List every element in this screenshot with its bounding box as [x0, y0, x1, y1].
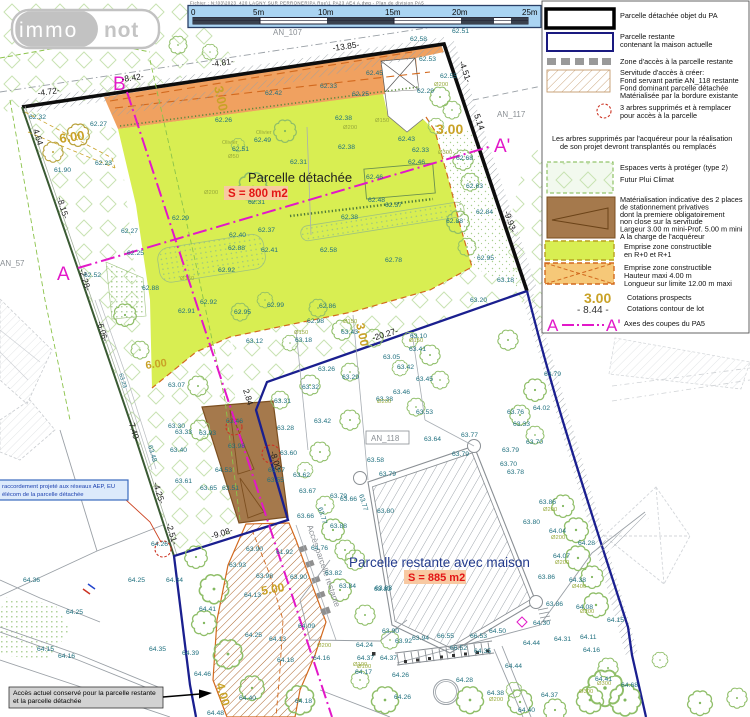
svg-text:Ø300: Ø300 — [438, 150, 452, 156]
svg-text:10m: 10m — [318, 8, 334, 17]
svg-text:63.98: 63.98 — [228, 443, 245, 450]
svg-text:25m: 25m — [522, 8, 538, 17]
svg-text:Ø50: Ø50 — [228, 154, 239, 160]
svg-text:S = 885 m2: S = 885 m2 — [408, 572, 465, 584]
svg-text:63.29: 63.29 — [342, 374, 359, 381]
svg-text:Espaces verts à protéger (type: Espaces verts à protéger (type 2) — [620, 163, 728, 172]
svg-text:64.15: 64.15 — [37, 646, 54, 653]
svg-text:3.00: 3.00 — [584, 290, 611, 306]
svg-text:64.15: 64.15 — [607, 617, 624, 624]
svg-text:64.53: 64.53 — [215, 467, 232, 474]
svg-text:62.58: 62.58 — [320, 247, 337, 254]
svg-text:et la parcelle détachée: et la parcelle détachée — [13, 698, 82, 705]
svg-text:Parcelle détachée: Parcelle détachée — [248, 170, 352, 185]
svg-text:63.82: 63.82 — [325, 570, 342, 577]
svg-text:61.92: 61.92 — [276, 549, 293, 556]
svg-text:Ø150: Ø150 — [343, 319, 357, 325]
svg-text:62.58: 62.58 — [410, 36, 427, 43]
svg-text:62.29: 62.29 — [172, 215, 189, 222]
svg-text:AN_107: AN_107 — [273, 28, 302, 37]
svg-text:62.33: 62.33 — [412, 147, 429, 154]
svg-text:64.41: 64.41 — [199, 606, 216, 613]
svg-text:63.93: 63.93 — [229, 562, 246, 569]
svg-text:AN_57: AN_57 — [0, 259, 25, 268]
svg-text:63.33: 63.33 — [175, 429, 192, 436]
svg-text:63.90: 63.90 — [290, 574, 307, 581]
svg-text:Ø150: Ø150 — [180, 276, 194, 282]
svg-text:62.37: 62.37 — [385, 202, 402, 209]
svg-text:63.76: 63.76 — [507, 409, 524, 416]
svg-text:64.44: 64.44 — [505, 663, 522, 670]
svg-text:62.23: 62.23 — [95, 160, 112, 167]
svg-text:63.07: 63.07 — [168, 382, 185, 389]
svg-text:64.38: 64.38 — [487, 690, 504, 697]
svg-text:Ø200: Ø200 — [551, 535, 565, 541]
svg-text:62.51: 62.51 — [232, 146, 249, 153]
svg-text:64.26: 64.26 — [394, 694, 411, 701]
svg-text:62.45: 62.45 — [366, 70, 383, 77]
svg-text:Olivier: Olivier — [222, 140, 238, 146]
svg-text:64.13: 64.13 — [244, 592, 261, 599]
svg-text:Ø200: Ø200 — [317, 643, 331, 649]
svg-text:64.24: 64.24 — [356, 642, 373, 649]
svg-text:63.65: 63.65 — [200, 485, 217, 492]
svg-text:63.46: 63.46 — [393, 389, 410, 396]
svg-text:62.27: 62.27 — [121, 228, 138, 235]
svg-text:66.55: 66.55 — [437, 633, 454, 640]
svg-text:0: 0 — [191, 8, 196, 17]
svg-text:62.46: 62.46 — [366, 174, 383, 181]
svg-text:63.45: 63.45 — [416, 376, 433, 383]
svg-text:63.61: 63.61 — [175, 478, 192, 485]
svg-text:63.66: 63.66 — [297, 513, 314, 520]
svg-text:63.86: 63.86 — [546, 601, 563, 608]
svg-text:61.90: 61.90 — [54, 167, 71, 174]
svg-text:62.31: 62.31 — [248, 199, 265, 206]
svg-text:64.07: 64.07 — [553, 553, 570, 560]
svg-text:raccordement projeté aux résea: raccordement projeté aux réseaux AEP, EU — [2, 484, 115, 490]
svg-text:63.41: 63.41 — [409, 346, 426, 353]
svg-text:62.32: 62.32 — [29, 114, 46, 121]
svg-text:63.32: 63.32 — [302, 384, 319, 391]
svg-text:62.26: 62.26 — [215, 117, 232, 124]
svg-text:63.62: 63.62 — [293, 472, 310, 479]
svg-text:Matérialisée par la bordure ex: Matérialisée par la bordure existante — [620, 91, 738, 100]
svg-text:63.28: 63.28 — [277, 425, 294, 432]
svg-text:64.31: 64.31 — [554, 636, 571, 643]
svg-text:63.53: 63.53 — [416, 409, 433, 416]
svg-text:63.93: 63.93 — [199, 430, 216, 437]
svg-text:Ø200: Ø200 — [489, 697, 503, 703]
svg-text:64.40: 64.40 — [239, 695, 256, 702]
svg-text:62.68: 62.68 — [456, 155, 473, 162]
svg-text:63.05: 63.05 — [383, 354, 400, 361]
svg-text:62.92: 62.92 — [218, 267, 235, 274]
svg-text:A: A — [57, 264, 70, 285]
svg-text:en R+0 et R+1: en R+0 et R+1 — [624, 250, 671, 259]
svg-text:63.26: 63.26 — [318, 366, 335, 373]
svg-text:S = 800 m2: S = 800 m2 — [228, 188, 288, 200]
svg-text:63.43: 63.43 — [341, 329, 358, 336]
svg-text:Longueur sur limite 12.00 m ma: Longueur sur limite 12.00 m maxi — [624, 279, 732, 288]
svg-text:Parcelle détachée objet du PA: Parcelle détachée objet du PA — [620, 11, 718, 20]
svg-text:63.67: 63.67 — [299, 488, 316, 495]
svg-text:62.27: 62.27 — [90, 121, 107, 128]
svg-text:Ø300: Ø300 — [579, 689, 593, 695]
svg-text:64.25: 64.25 — [128, 577, 145, 584]
svg-text:62.40: 62.40 — [229, 232, 246, 239]
svg-text:62.46: 62.46 — [408, 159, 425, 166]
svg-text:64.46: 64.46 — [194, 671, 211, 678]
svg-text:64.16: 64.16 — [58, 653, 75, 660]
svg-text:63.77: 63.77 — [461, 432, 478, 439]
svg-text:64.35: 64.35 — [149, 646, 166, 653]
svg-text:Olivier: Olivier — [256, 130, 272, 136]
svg-text:63.20: 63.20 — [470, 297, 487, 304]
svg-text:64.25: 64.25 — [245, 632, 262, 639]
svg-text:63.42: 63.42 — [397, 364, 414, 371]
svg-text:63.90: 63.90 — [246, 546, 263, 553]
svg-text:63.42: 63.42 — [314, 418, 331, 425]
svg-text:62.49: 62.49 — [254, 137, 271, 144]
svg-text:Cotations contour de lot: Cotations contour de lot — [627, 304, 704, 313]
svg-text:64.02: 64.02 — [533, 405, 550, 412]
svg-text:64.68: 64.68 — [621, 682, 638, 689]
svg-text:Ø100: Ø100 — [357, 664, 371, 670]
svg-text:64.76: 64.76 — [311, 545, 328, 552]
svg-text:62.92: 62.92 — [200, 299, 217, 306]
svg-text:Ø200: Ø200 — [204, 190, 218, 196]
svg-text:Ø200: Ø200 — [580, 609, 594, 615]
svg-text:64.18: 64.18 — [277, 657, 294, 664]
svg-text:Ø150: Ø150 — [294, 330, 308, 336]
svg-text:A': A' — [494, 136, 510, 157]
svg-text:Fichier : N:\03\2023_420 LAGNY: Fichier : N:\03\2023_420 LAGNY SUR PERRO… — [190, 1, 424, 6]
svg-text:63.88: 63.88 — [330, 523, 347, 530]
svg-text:AN_117: AN_117 — [497, 110, 526, 119]
svg-text:63.66: 63.66 — [340, 496, 357, 503]
svg-text:63.84: 63.84 — [339, 583, 356, 590]
svg-text:63.18: 63.18 — [497, 277, 514, 284]
svg-text:63.78: 63.78 — [507, 469, 524, 476]
svg-text:63.60: 63.60 — [280, 450, 297, 457]
svg-text:62.52: 62.52 — [84, 272, 101, 279]
svg-text:63.83: 63.83 — [375, 585, 392, 592]
svg-text:64.37: 64.37 — [357, 655, 374, 662]
svg-text:A la charge de l'acquéreur: A la charge de l'acquéreur — [620, 232, 705, 241]
svg-text:62.88: 62.88 — [228, 245, 245, 252]
svg-text:64.26: 64.26 — [151, 541, 168, 548]
svg-text:Ø150: Ø150 — [409, 338, 423, 344]
svg-text:A': A' — [606, 316, 621, 335]
svg-text:64.37: 64.37 — [380, 655, 397, 662]
svg-text:AN_118: AN_118 — [371, 434, 400, 443]
svg-text:63.80: 63.80 — [377, 508, 394, 515]
svg-text:62.78: 62.78 — [385, 257, 402, 264]
svg-text:Ø300: Ø300 — [597, 681, 611, 687]
svg-text:64.28: 64.28 — [456, 677, 473, 684]
svg-text:63.64: 63.64 — [424, 436, 441, 443]
svg-text:64.16: 64.16 — [313, 655, 330, 662]
svg-text:5m: 5m — [253, 8, 264, 17]
svg-text:64.39: 64.39 — [182, 650, 199, 657]
svg-text:64.48: 64.48 — [207, 710, 224, 717]
svg-text:64.35: 64.35 — [474, 648, 491, 655]
svg-text:immo: immo — [19, 19, 78, 42]
svg-text:62.86: 62.86 — [319, 303, 336, 310]
svg-text:62.41: 62.41 — [261, 247, 278, 254]
svg-text:66.53: 66.53 — [470, 633, 487, 640]
svg-text:64.36: 64.36 — [23, 577, 40, 584]
svg-text:63.51: 63.51 — [222, 485, 239, 492]
svg-text:63.90: 63.90 — [382, 628, 399, 635]
svg-text:64.30: 64.30 — [533, 620, 550, 627]
svg-text:63.58: 63.58 — [367, 457, 384, 464]
svg-text:64.50: 64.50 — [489, 628, 506, 635]
svg-text:64.38: 64.38 — [569, 577, 586, 584]
svg-text:63.33: 63.33 — [513, 421, 530, 428]
svg-text:pour accès à la parcelle: pour accès à la parcelle — [620, 111, 697, 120]
svg-text:63.57: 63.57 — [268, 467, 285, 474]
svg-text:62.63: 62.63 — [466, 183, 483, 190]
svg-text:63.86: 63.86 — [538, 574, 555, 581]
svg-text:15m: 15m — [385, 8, 401, 17]
svg-text:63.79: 63.79 — [502, 447, 519, 454]
svg-text:63.70: 63.70 — [526, 439, 543, 446]
svg-text:62.51: 62.51 — [452, 28, 469, 35]
svg-text:64.16: 64.16 — [583, 647, 600, 654]
svg-text:64.28: 64.28 — [578, 540, 595, 547]
svg-text:20m: 20m — [452, 8, 468, 17]
svg-text:62.29: 62.29 — [417, 88, 434, 95]
svg-text:63.55: 63.55 — [267, 477, 284, 484]
svg-text:63.86: 63.86 — [539, 499, 556, 506]
svg-text:Ø200: Ø200 — [555, 560, 569, 566]
svg-text:62.37: 62.37 — [258, 227, 275, 234]
svg-text:Cotations prospects: Cotations prospects — [627, 293, 692, 302]
svg-text:élécom de la parcelle détachée: élécom de la parcelle détachée — [2, 492, 84, 498]
svg-text:63.79: 63.79 — [452, 451, 469, 458]
svg-text:62.95: 62.95 — [477, 255, 494, 262]
svg-text:Zone d'accès à la parcelle res: Zone d'accès à la parcelle restante — [620, 57, 733, 66]
svg-text:Ø200: Ø200 — [543, 507, 557, 513]
svg-text:A: A — [547, 316, 559, 335]
svg-text:64.26: 64.26 — [392, 672, 409, 679]
svg-text:62.31: 62.31 — [290, 159, 307, 166]
svg-text:62.25: 62.25 — [352, 91, 369, 98]
svg-text:64.11: 64.11 — [580, 634, 597, 641]
svg-text:66.52: 66.52 — [450, 645, 467, 652]
svg-text:contenant la maison actuelle: contenant la maison actuelle — [620, 40, 713, 49]
svg-text:62.88: 62.88 — [446, 218, 463, 225]
svg-text:not: not — [104, 19, 139, 42]
svg-text:63.80: 63.80 — [523, 519, 540, 526]
svg-text:Accès actuel conservé pour la: Accès actuel conservé pour la parcelle r… — [13, 690, 156, 697]
svg-text:62.43: 62.43 — [398, 136, 415, 143]
svg-text:63.79: 63.79 — [544, 371, 561, 378]
svg-text:63.70: 63.70 — [500, 461, 517, 468]
svg-text:3.00: 3.00 — [436, 121, 463, 137]
svg-text:Axes des coupes du PA5: Axes des coupes du PA5 — [624, 319, 705, 328]
svg-text:62.99: 62.99 — [267, 302, 284, 309]
svg-text:62.91: 62.91 — [178, 308, 195, 315]
svg-text:62.38: 62.38 — [338, 144, 355, 151]
svg-text:Ø200: Ø200 — [434, 82, 448, 88]
svg-text:Ø200: Ø200 — [377, 399, 391, 405]
svg-text:62.55: 62.55 — [440, 73, 457, 80]
svg-text:62.98: 62.98 — [307, 318, 324, 325]
svg-text:63.18: 63.18 — [295, 337, 312, 344]
svg-text:63.31: 63.31 — [274, 398, 291, 405]
svg-text:62.42: 62.42 — [265, 90, 282, 97]
svg-text:de son projet devront transpla: de son projet devront transplantés ou re… — [560, 142, 717, 151]
svg-text:Futur Plui Climat: Futur Plui Climat — [620, 175, 674, 184]
svg-text:64.09: 64.09 — [298, 623, 315, 630]
svg-text:62.38: 62.38 — [335, 115, 352, 122]
svg-text:63.94: 63.94 — [412, 635, 429, 642]
svg-text:Parcelle restante avec maison: Parcelle restante avec maison — [349, 555, 530, 570]
svg-text:62.48: 62.48 — [368, 197, 385, 204]
svg-text:- 8.44 -: - 8.44 - — [577, 305, 609, 316]
svg-text:Ø400: Ø400 — [572, 584, 586, 590]
svg-text:Ø150: Ø150 — [375, 118, 389, 124]
svg-text:64.37: 64.37 — [541, 692, 558, 699]
svg-text:Ø200: Ø200 — [343, 125, 357, 131]
svg-text:64.34: 64.34 — [166, 577, 183, 584]
svg-text:62.95: 62.95 — [234, 309, 251, 316]
svg-text:64.04: 64.04 — [549, 528, 566, 535]
svg-text:64.18: 64.18 — [295, 698, 312, 705]
svg-text:64.17: 64.17 — [355, 669, 372, 676]
svg-text:62.38: 62.38 — [341, 214, 358, 221]
svg-text:63.92: 63.92 — [395, 638, 412, 645]
svg-text:63.79: 63.79 — [379, 471, 396, 478]
svg-text:62.33: 62.33 — [320, 83, 337, 90]
svg-text:63.46: 63.46 — [226, 418, 243, 425]
svg-text:63.40: 63.40 — [170, 447, 187, 454]
svg-text:62.53: 62.53 — [419, 56, 436, 63]
svg-text:63.12: 63.12 — [246, 338, 263, 345]
svg-text:64.44: 64.44 — [523, 640, 540, 647]
svg-text:64.13: 64.13 — [269, 636, 286, 643]
svg-text:62.88: 62.88 — [142, 285, 159, 292]
svg-text:64.25: 64.25 — [66, 609, 83, 616]
svg-text:62.84: 62.84 — [476, 209, 493, 216]
svg-text:63.98: 63.98 — [256, 573, 273, 580]
svg-text:64.40: 64.40 — [518, 707, 535, 714]
svg-text:62.25: 62.25 — [127, 250, 144, 257]
